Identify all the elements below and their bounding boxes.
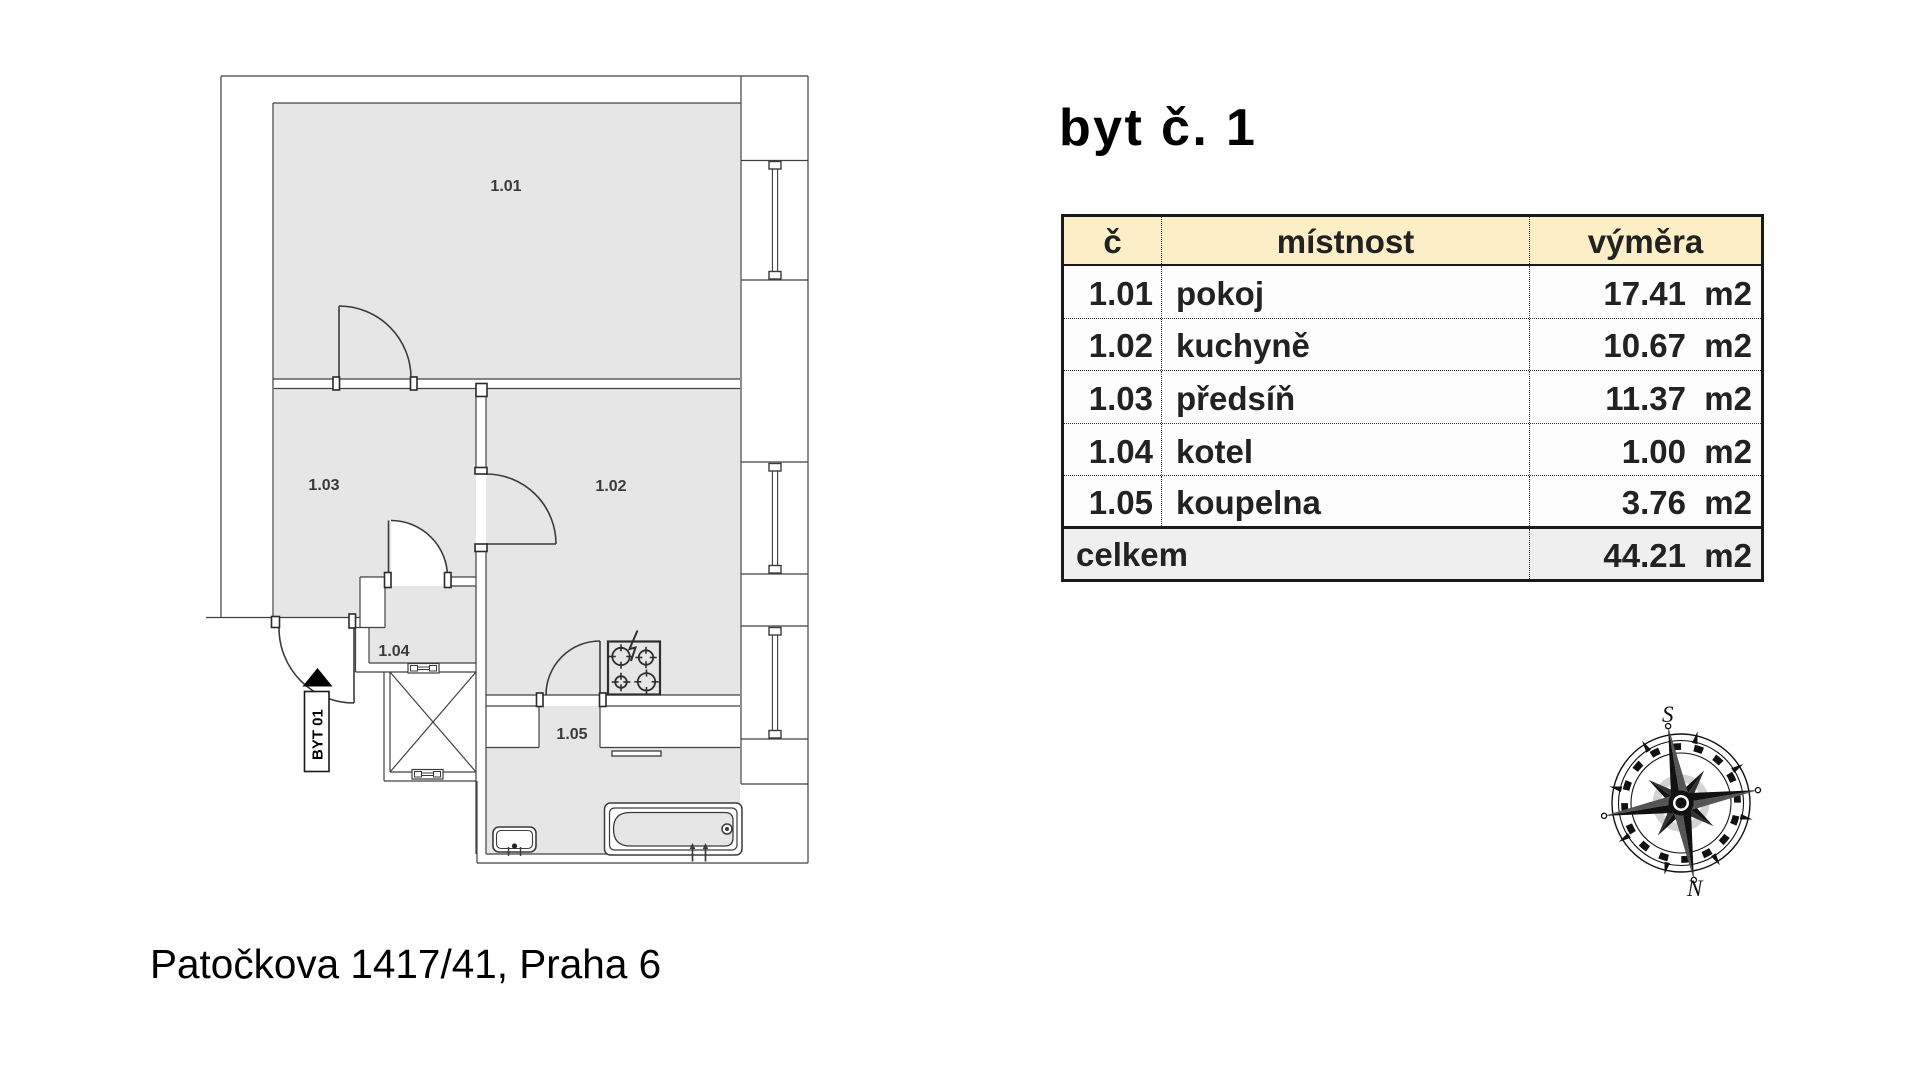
svg-text:1.05: 1.05	[556, 726, 587, 743]
svg-text:BYT 01: BYT 01	[310, 709, 327, 760]
svg-text:1.03: 1.03	[308, 477, 339, 494]
svg-text:1.04: 1.04	[378, 643, 409, 660]
svg-text:N: N	[1686, 876, 1704, 901]
svg-text:1.01: 1.01	[490, 178, 521, 195]
svg-text:1.02: 1.02	[595, 478, 626, 495]
svg-text:S: S	[1662, 702, 1674, 727]
